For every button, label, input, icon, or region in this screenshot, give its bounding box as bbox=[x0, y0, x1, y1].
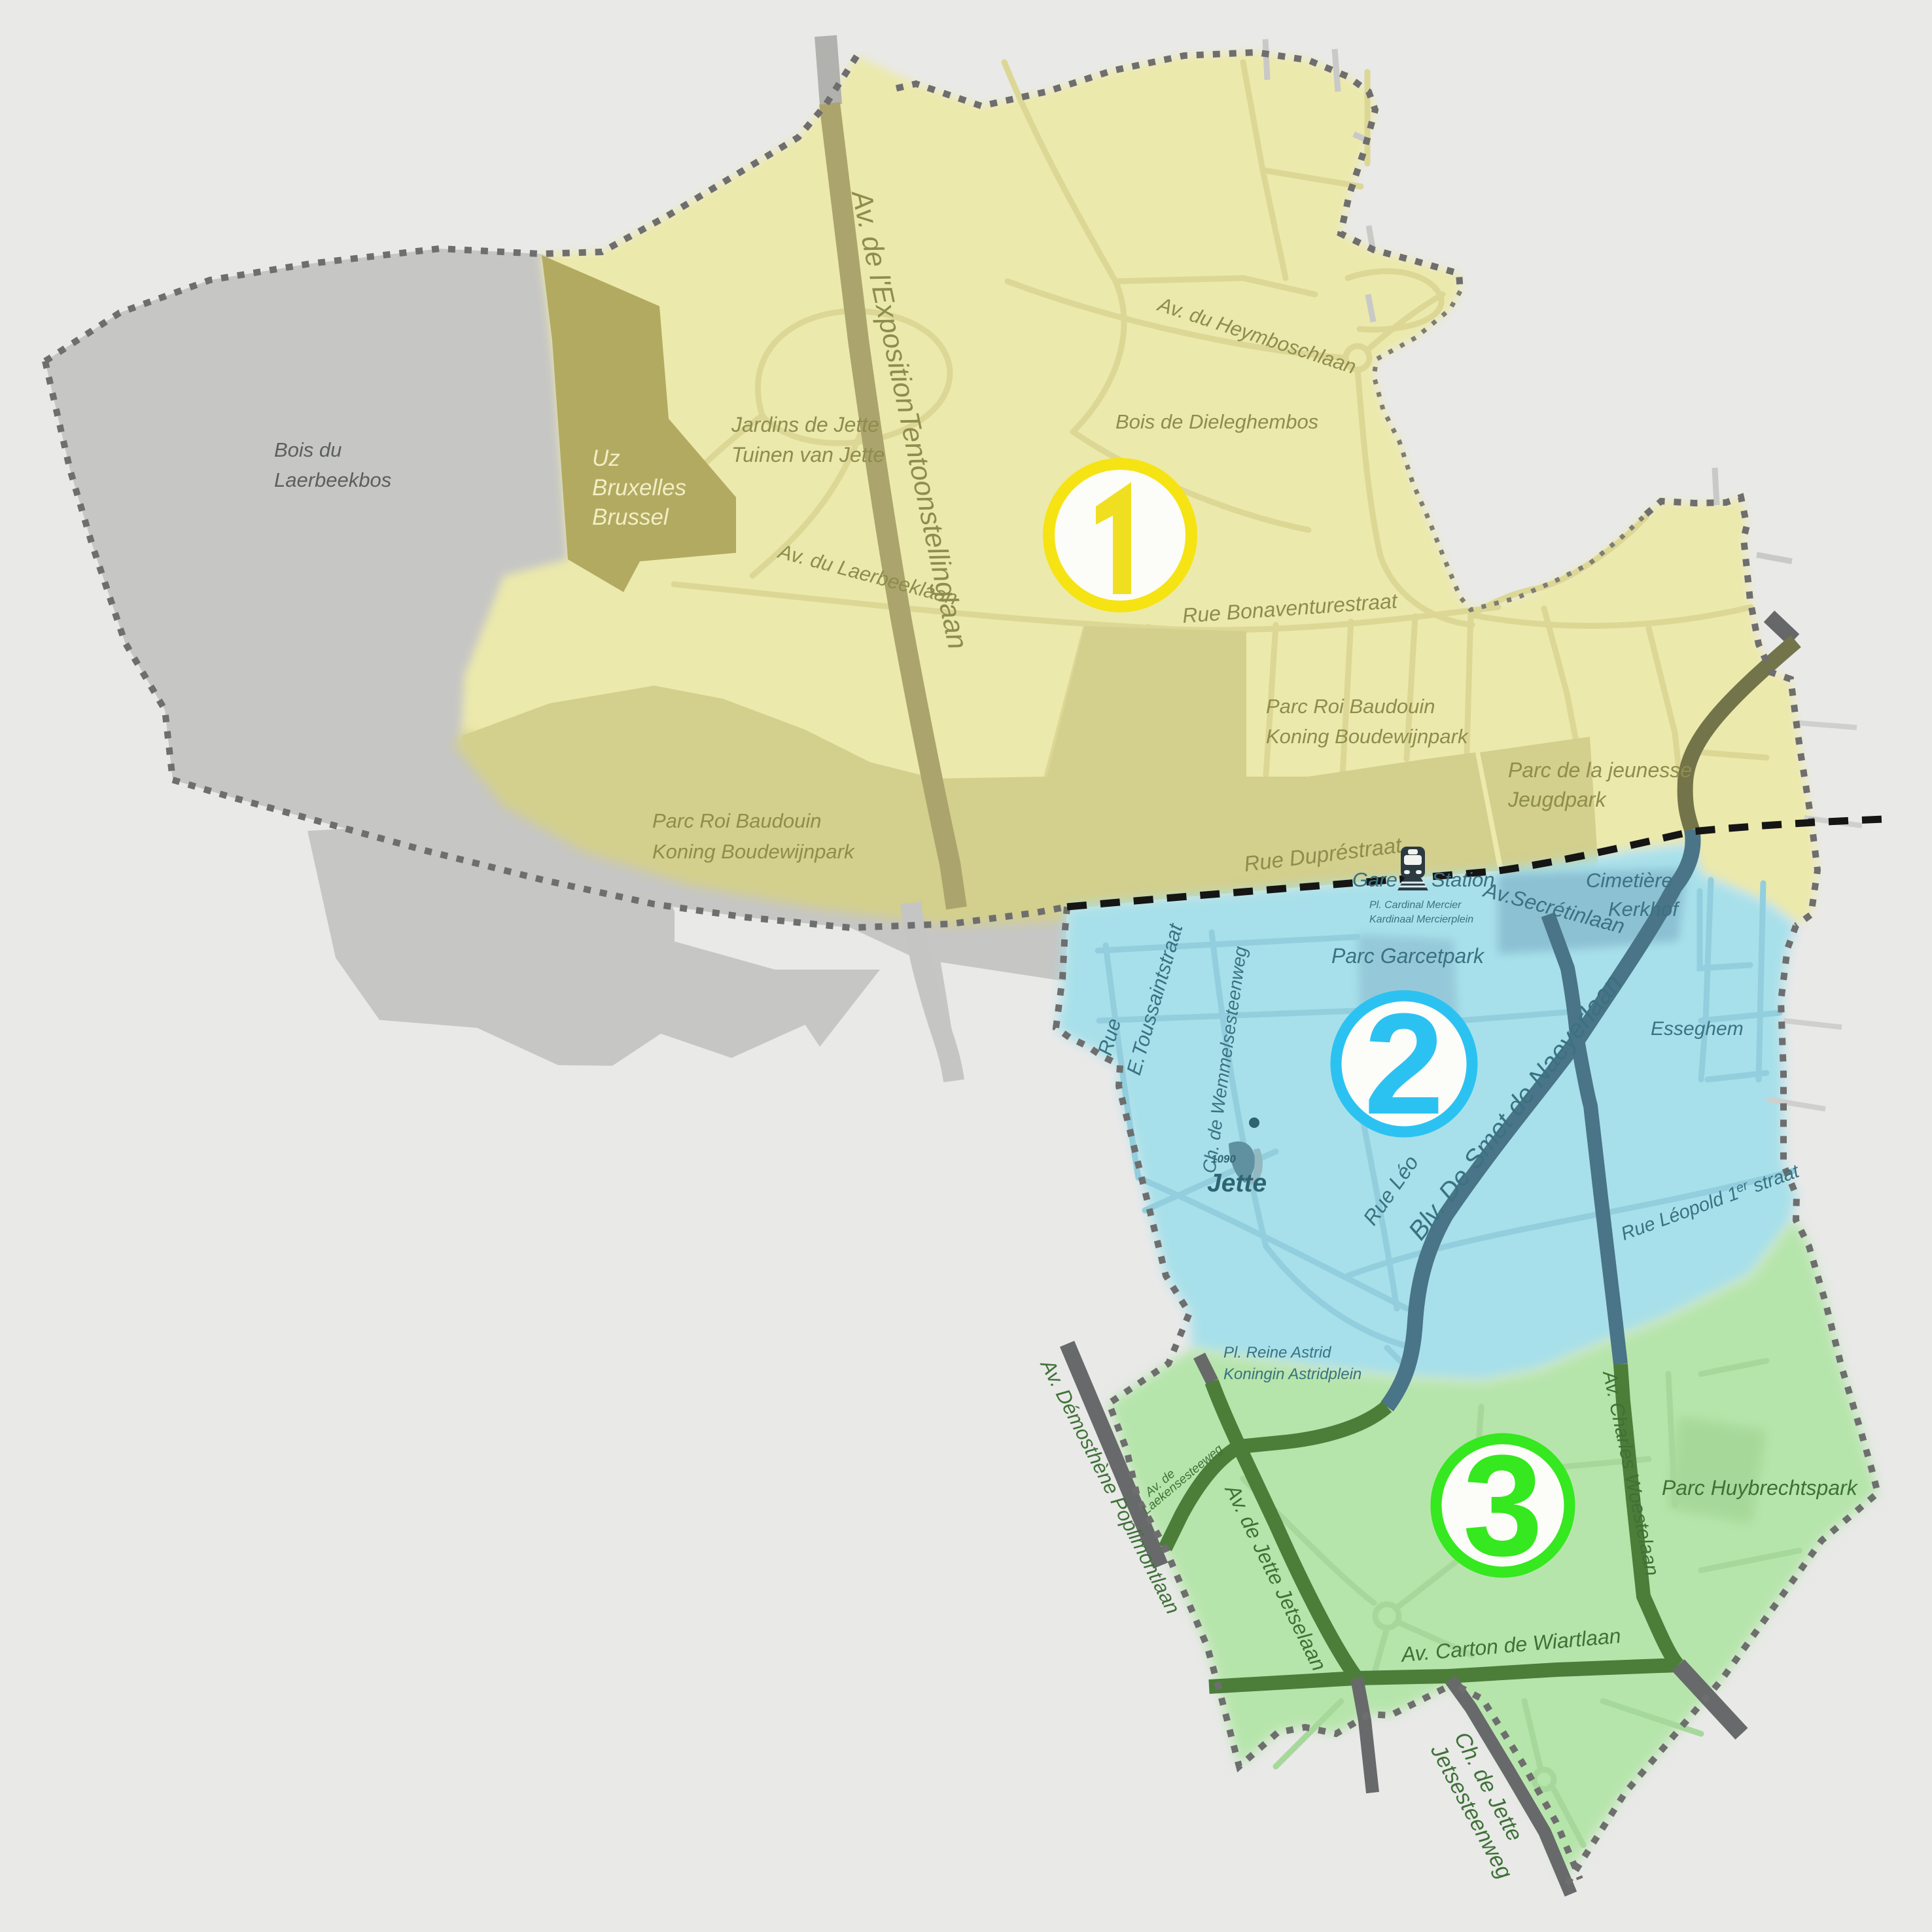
svg-text:Parc Garcetpark: Parc Garcetpark bbox=[1331, 944, 1485, 968]
svg-text:Jeugdpark: Jeugdpark bbox=[1507, 788, 1607, 811]
svg-text:Esseghem: Esseghem bbox=[1651, 1018, 1744, 1040]
svg-text:Pl. Reine Astrid: Pl. Reine Astrid bbox=[1223, 1344, 1331, 1361]
svg-text:Parc de la jeunesse: Parc de la jeunesse bbox=[1508, 758, 1692, 782]
svg-text:Pl. Cardinal Mercier: Pl. Cardinal Mercier bbox=[1369, 900, 1462, 911]
svg-text:Brussel: Brussel bbox=[592, 504, 669, 530]
svg-text:Cimetière: Cimetière bbox=[1586, 869, 1673, 892]
svg-text:Kerkhof: Kerkhof bbox=[1608, 898, 1680, 921]
svg-text:3: 3 bbox=[1463, 1425, 1543, 1586]
svg-text:Tuinen van Jette: Tuinen van Jette bbox=[731, 443, 885, 466]
svg-text:Koning Boudewijnpark: Koning Boudewijnpark bbox=[1266, 725, 1469, 748]
svg-text:Parc Huybrechtspark: Parc Huybrechtspark bbox=[1662, 1476, 1859, 1500]
svg-text:Parc Roi Baudouin: Parc Roi Baudouin bbox=[652, 809, 822, 832]
svg-text:Laerbeekbos: Laerbeekbos bbox=[274, 468, 391, 491]
svg-text:Jardins de Jette: Jardins de Jette bbox=[731, 413, 879, 436]
svg-text:2: 2 bbox=[1364, 983, 1444, 1144]
svg-text:Bois du: Bois du bbox=[274, 438, 342, 461]
svg-text:Bruxelles: Bruxelles bbox=[592, 475, 686, 501]
svg-text:Bois de Dieleghembos: Bois de Dieleghembos bbox=[1115, 410, 1318, 433]
svg-text:Koningin Astridplein: Koningin Astridplein bbox=[1223, 1365, 1361, 1383]
svg-text:Koning Boudewijnpark: Koning Boudewijnpark bbox=[652, 840, 855, 863]
svg-text:Parc Roi Baudouin: Parc Roi Baudouin bbox=[1266, 695, 1435, 718]
svg-text:Kardinaal Mercierplein: Kardinaal Mercierplein bbox=[1369, 914, 1473, 925]
svg-text:Gare: Gare bbox=[1352, 868, 1397, 891]
svg-text:Uz: Uz bbox=[592, 446, 620, 471]
